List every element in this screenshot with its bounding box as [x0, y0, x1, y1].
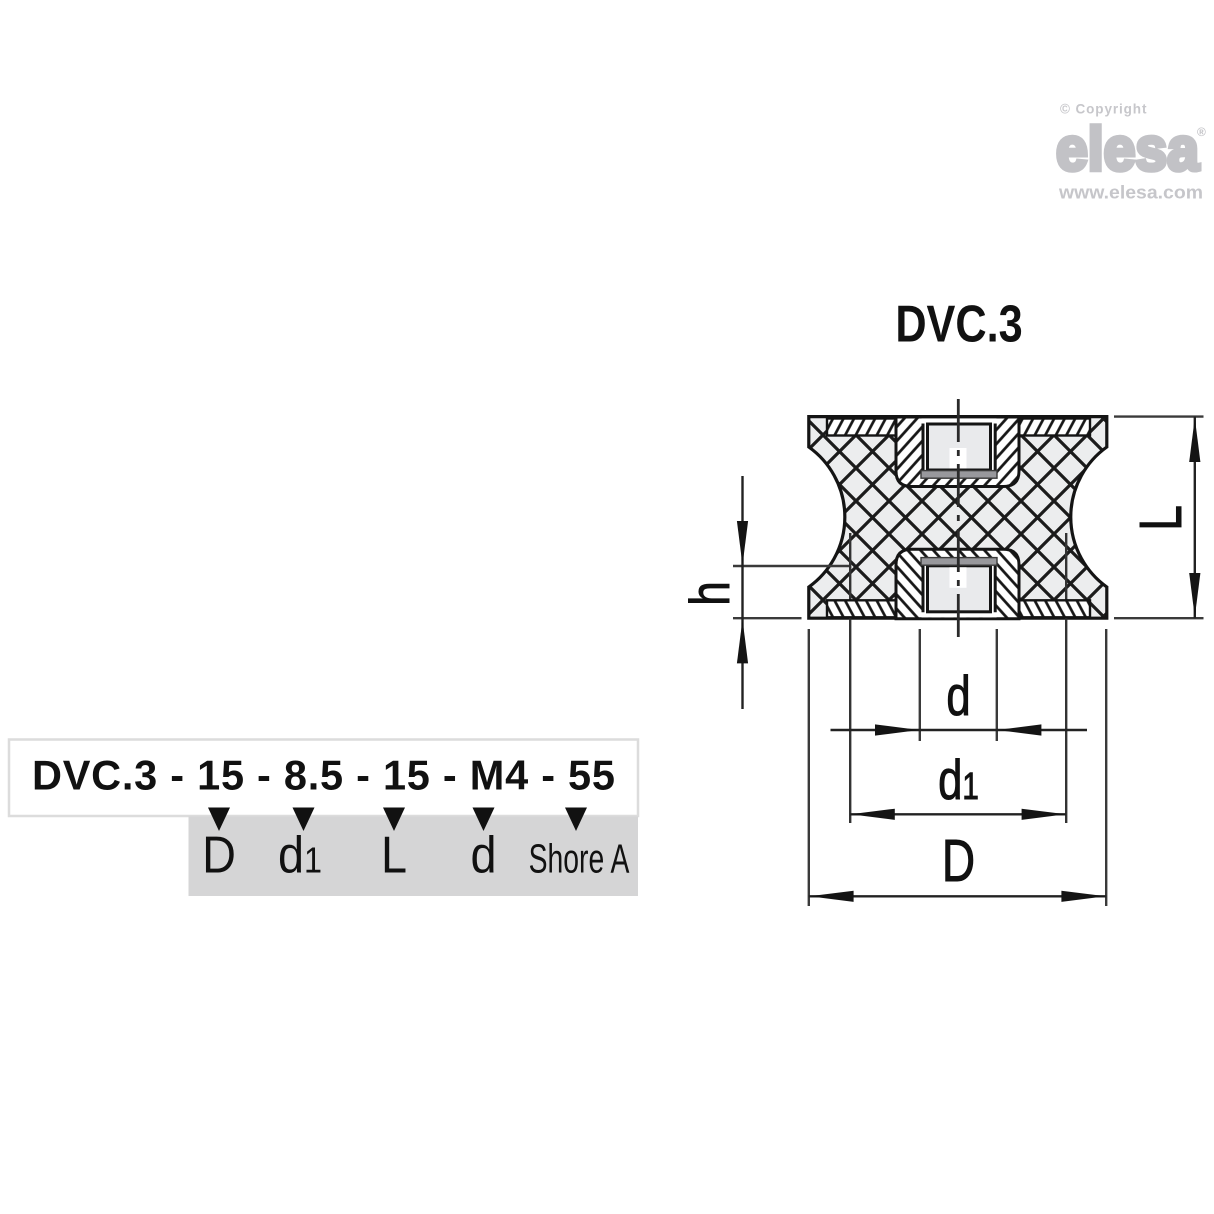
svg-text:®: ®: [1197, 125, 1206, 139]
svg-text:DVC.3 - 15 - 8.5 - 15 - M4 - 5: DVC.3 - 15 - 8.5 - 15 - M4 - 55: [32, 752, 616, 799]
svg-text:d: d: [470, 826, 496, 884]
svg-text:www.elesa.com: www.elesa.com: [1058, 183, 1203, 203]
svg-text:L: L: [1129, 505, 1195, 531]
svg-text:D: D: [202, 826, 236, 884]
svg-text:Shore A: Shore A: [529, 836, 630, 881]
svg-text:D: D: [942, 829, 975, 895]
svg-text:h: h: [679, 581, 741, 605]
svg-text:L: L: [381, 826, 407, 884]
svg-text:d: d: [946, 665, 970, 727]
svg-text:elesa: elesa: [1056, 115, 1200, 183]
svg-text:DVC.3: DVC.3: [895, 296, 1022, 353]
